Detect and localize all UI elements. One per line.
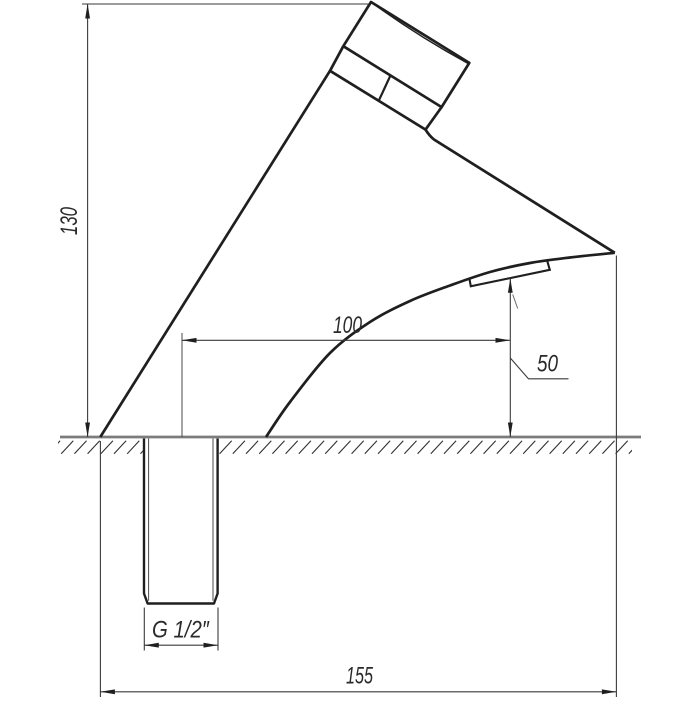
svg-text:155: 155 <box>346 663 373 690</box>
svg-text:G 1/2″: G 1/2″ <box>152 617 210 644</box>
svg-text:100: 100 <box>333 312 362 339</box>
svg-text:130: 130 <box>56 207 83 235</box>
svg-text:50: 50 <box>537 351 559 378</box>
